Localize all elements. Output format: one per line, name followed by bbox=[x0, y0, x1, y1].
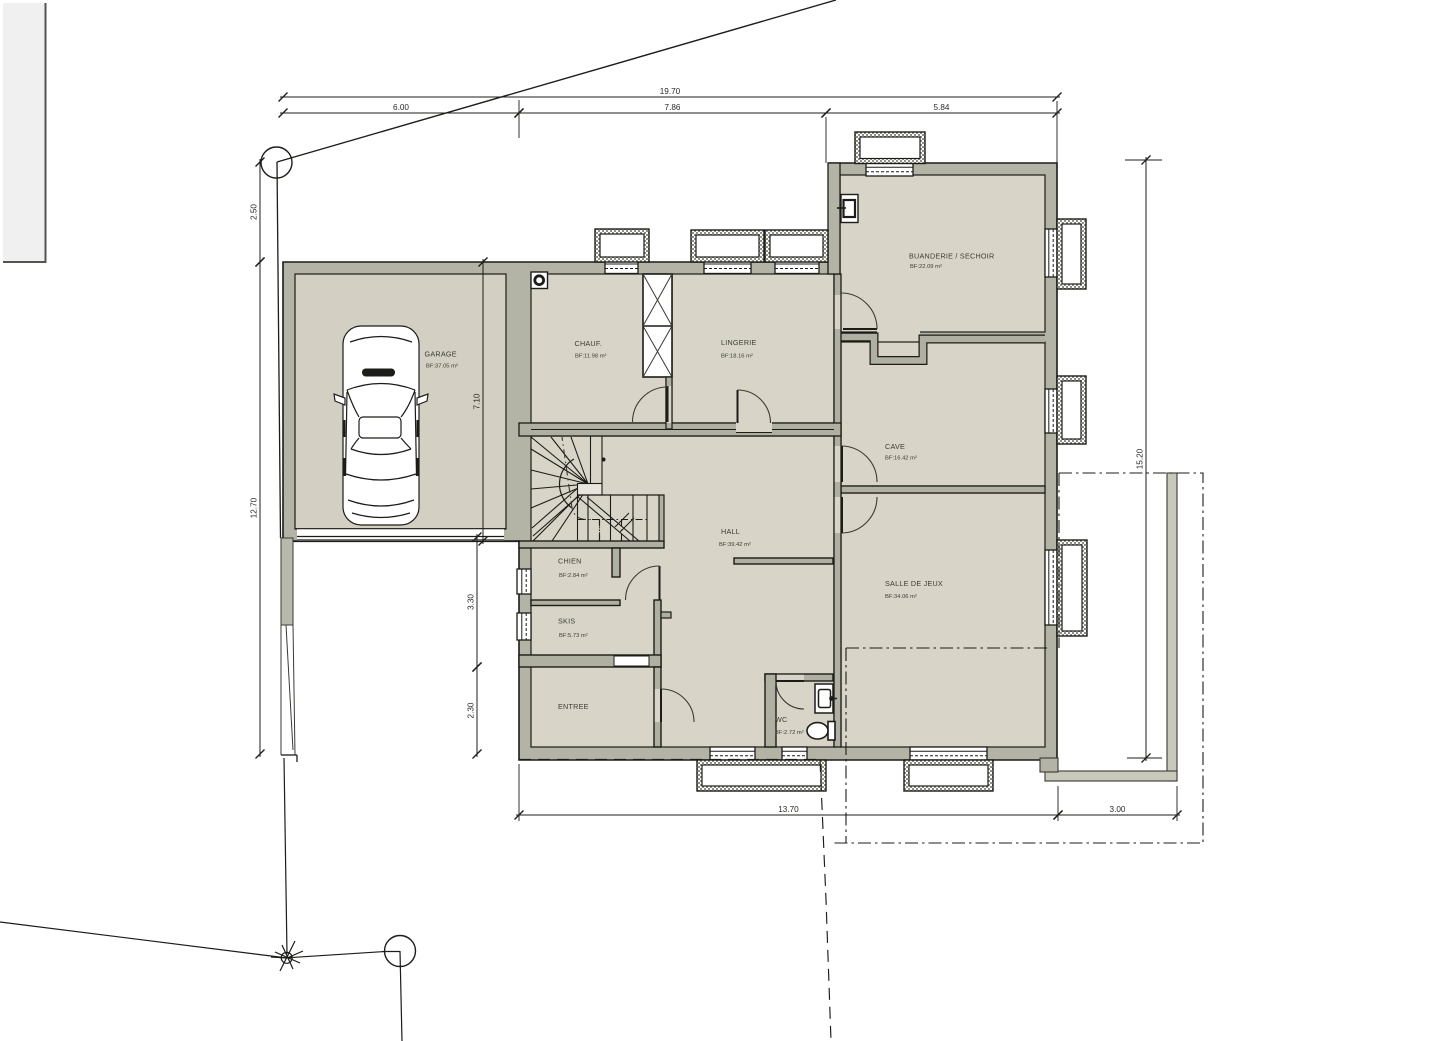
svg-text:GARAGE: GARAGE bbox=[425, 350, 457, 359]
svg-text:BF:39.42 m²: BF:39.42 m² bbox=[719, 542, 751, 548]
svg-text:BF:2.72 m²: BF:2.72 m² bbox=[775, 730, 804, 736]
svg-text:BF:22.09 m²: BF:22.09 m² bbox=[910, 264, 942, 270]
svg-text:HALL: HALL bbox=[721, 527, 740, 536]
svg-text:BUANDERIE / SECHOIR: BUANDERIE / SECHOIR bbox=[909, 252, 994, 261]
svg-text:BF:2.84 m²: BF:2.84 m² bbox=[559, 573, 588, 579]
svg-text:BF:16.42 m²: BF:16.42 m² bbox=[885, 456, 917, 462]
svg-text:LINGERIE: LINGERIE bbox=[721, 338, 757, 347]
svg-text:SKIS: SKIS bbox=[558, 617, 575, 626]
svg-text:BF:11.98 m²: BF:11.98 m² bbox=[575, 354, 607, 360]
svg-text:3.00: 3.00 bbox=[1110, 805, 1126, 814]
svg-text:BF:37.05 m²: BF:37.05 m² bbox=[426, 364, 458, 370]
svg-text:19.70: 19.70 bbox=[660, 87, 681, 96]
svg-text:ENTREE: ENTREE bbox=[558, 702, 589, 711]
svg-text:CHIEN: CHIEN bbox=[558, 557, 582, 566]
svg-text:3.30: 3.30 bbox=[467, 594, 476, 610]
svg-text:2.30: 2.30 bbox=[467, 702, 476, 718]
svg-text:WC: WC bbox=[775, 715, 787, 724]
svg-text:SALLE DE JEUX: SALLE DE JEUX bbox=[885, 579, 943, 588]
svg-text:15.20: 15.20 bbox=[1136, 448, 1145, 469]
svg-text:BF:18.16 m²: BF:18.16 m² bbox=[721, 354, 753, 360]
svg-text:5.84: 5.84 bbox=[934, 103, 950, 112]
svg-text:7.86: 7.86 bbox=[665, 103, 681, 112]
svg-text:CAVE: CAVE bbox=[885, 442, 905, 451]
svg-text:7.10: 7.10 bbox=[473, 393, 482, 409]
svg-text:BF:34.06 m²: BF:34.06 m² bbox=[885, 594, 917, 600]
svg-text:2.50: 2.50 bbox=[250, 204, 259, 220]
svg-text:6.00: 6.00 bbox=[393, 103, 409, 112]
svg-text:CHAUF.: CHAUF. bbox=[575, 339, 602, 348]
svg-text:13.70: 13.70 bbox=[778, 805, 799, 814]
svg-text:12.70: 12.70 bbox=[250, 497, 259, 518]
svg-text:BF:5.73 m²: BF:5.73 m² bbox=[559, 633, 588, 639]
